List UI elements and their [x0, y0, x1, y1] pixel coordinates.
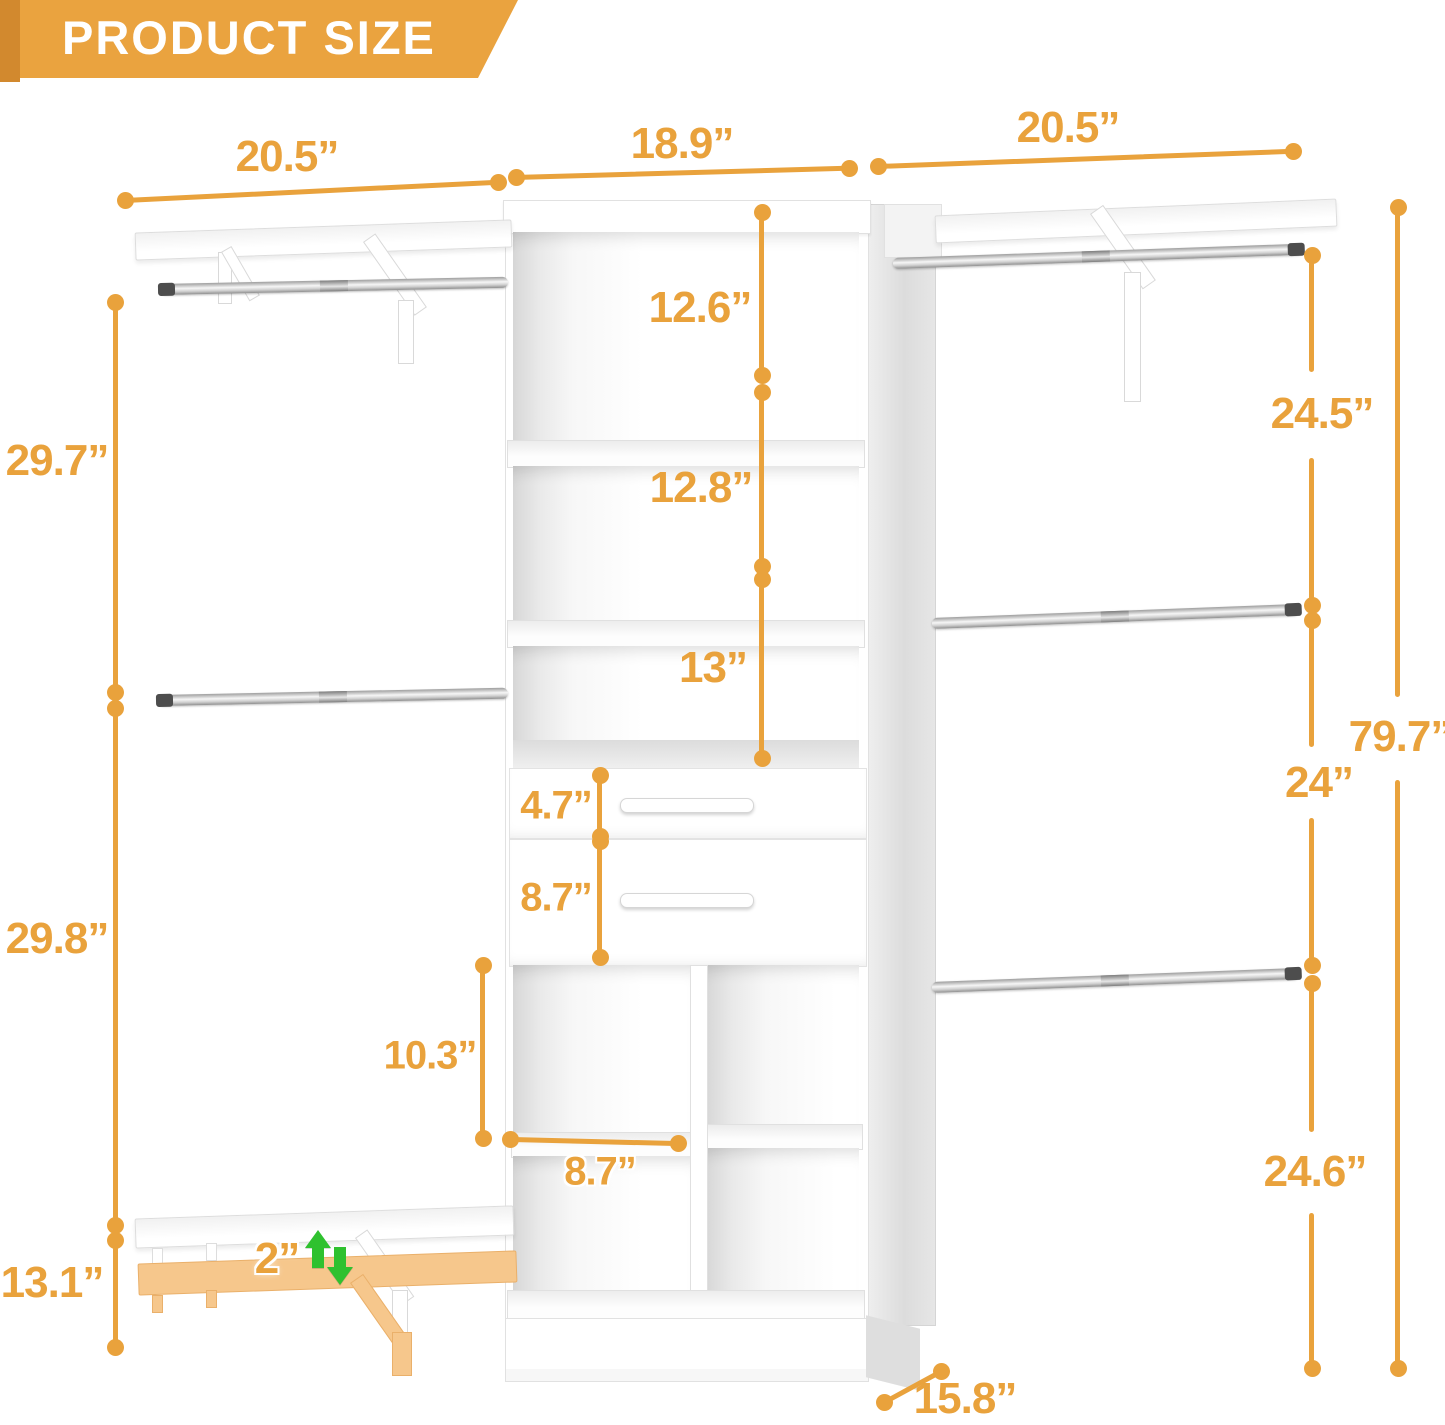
dim-dot: [754, 750, 771, 767]
arrow-shaft: [312, 1248, 324, 1268]
dim-label-top-center-width: 18.9”: [631, 119, 734, 169]
dimline-total-height-b: [1395, 780, 1400, 1368]
dimline-opening-2: [759, 392, 764, 566]
right-top-shelf: [935, 199, 1338, 244]
dimline-left-middle: [113, 708, 118, 1225]
dim-dot: [754, 571, 771, 588]
dim-dot: [1304, 247, 1321, 264]
dim-label-drawer-2: 8.7”: [520, 876, 592, 921]
tower-shelf-shadow-band: [513, 740, 859, 768]
right-shelf-bracket-vert: [1124, 272, 1141, 402]
arrow-shaft: [334, 1247, 346, 1267]
dim-label-opening-3: 13”: [679, 643, 747, 693]
hanging-rod-right-lower: [932, 968, 1300, 993]
dim-label-opening-1: 12.6”: [649, 283, 752, 333]
dim-label-total-height: 79.7”: [1349, 712, 1445, 762]
dim-dot: [107, 700, 124, 717]
ghost-shelf-pin: [152, 1295, 163, 1313]
tower-top-board: [503, 200, 871, 234]
dim-dot: [754, 384, 771, 401]
dim-label-right-lower: 24.6”: [1264, 1147, 1367, 1197]
hanging-rod-right-upper: [893, 244, 1303, 269]
dimline-top-left: [125, 180, 499, 203]
dim-dot: [502, 1131, 519, 1148]
dim-dot: [475, 1130, 492, 1147]
rod-seam: [320, 280, 348, 292]
tower-bottom-board: [507, 1290, 865, 1320]
tower-base: [505, 1318, 869, 1382]
dim-dot: [592, 833, 609, 850]
tower-opening-1: [513, 232, 859, 440]
rod-cap: [1284, 967, 1301, 981]
dimline-left-lower: [113, 1240, 118, 1347]
dim-dot: [592, 949, 609, 966]
dim-dot: [754, 367, 771, 384]
banner-edge-ribbon: [0, 0, 20, 82]
dim-label-top-left-width: 20.5”: [236, 132, 339, 182]
cubby-shelf-right: [704, 1124, 863, 1150]
page-title: PRODUCT SIZE: [62, 0, 436, 76]
dimline-opening-1: [759, 212, 764, 375]
cubby-divider: [690, 965, 708, 1292]
dim-dot: [1304, 612, 1321, 629]
drawer-1-handle: [620, 798, 754, 813]
rod-cap: [1284, 603, 1301, 617]
dim-dot: [670, 1135, 687, 1152]
shelf-pin: [206, 1243, 217, 1261]
rod-seam: [1101, 974, 1129, 986]
dim-dot: [1390, 199, 1407, 216]
dim-dot: [870, 158, 887, 175]
tower-base-side: [866, 1315, 920, 1390]
drawer-2-handle: [620, 893, 754, 908]
dimline-right-middle-a: [1309, 620, 1314, 747]
left-top-shelf: [135, 219, 513, 260]
dim-dot: [1285, 143, 1302, 160]
product-size-diagram: 20.5” 18.9” 20.5” 29.7” 29.8” 13.1” 12.6…: [0, 0, 1445, 1425]
cubby-top-left: [513, 965, 690, 1132]
dimline-opening-3: [759, 579, 764, 758]
cubby-bottom-right: [706, 1148, 859, 1290]
dim-dot: [1304, 975, 1321, 992]
dimline-drawer-2: [597, 841, 602, 957]
dim-dot: [107, 1339, 124, 1356]
dim-label-right-middle: 24”: [1285, 758, 1353, 808]
rod-seam: [1081, 250, 1109, 262]
dim-dot: [841, 160, 858, 177]
header-banner: PRODUCT SIZE: [20, 0, 518, 78]
rod-cap: [1288, 243, 1305, 257]
dim-dot: [107, 294, 124, 311]
dim-dot: [1390, 1360, 1407, 1377]
dimline-right-upper-a: [1309, 255, 1314, 372]
dim-dot: [1304, 957, 1321, 974]
dim-dot: [876, 1394, 893, 1411]
dim-dot: [107, 1232, 124, 1249]
dim-label-drawer-1: 4.7”: [520, 784, 592, 829]
dim-dot: [508, 169, 525, 186]
cubby-top-right: [706, 965, 859, 1124]
dim-label-cubby-width: 8.7”: [564, 1150, 636, 1195]
rod-cap: [158, 283, 175, 296]
dimline-drawer-1: [597, 775, 602, 836]
dim-label-left-middle: 29.8”: [6, 914, 109, 964]
dim-dot: [1304, 1360, 1321, 1377]
dim-dot: [754, 204, 771, 221]
rod-mounting-plate: [884, 204, 942, 258]
left-shelf-bracket-vert: [398, 300, 414, 364]
dim-dot: [490, 174, 507, 191]
dim-dot: [107, 684, 124, 701]
dimline-cubby-height: [480, 965, 485, 1138]
rod-seam: [319, 691, 347, 703]
dim-dot: [475, 957, 492, 974]
dimline-left-upper: [113, 302, 118, 692]
dim-label-opening-2: 12.8”: [650, 463, 753, 513]
dim-label-left-lower: 13.1”: [1, 1258, 104, 1308]
dim-label-cubby-height: 10.3”: [384, 1034, 477, 1079]
rod-cap: [156, 694, 173, 707]
dim-label-depth: 15.8”: [914, 1374, 1017, 1424]
ghost-shelf-pin: [206, 1290, 217, 1308]
arrow-down-icon: [327, 1247, 353, 1285]
rod-seam: [1101, 610, 1129, 622]
hanging-rod-right-middle: [932, 604, 1300, 629]
dim-label-right-upper: 24.5”: [1271, 389, 1374, 439]
hanging-rod-left-upper: [160, 277, 508, 295]
arrow-head: [327, 1267, 353, 1285]
dimline-right-lower-b: [1309, 1213, 1314, 1368]
arrow-head: [305, 1230, 331, 1248]
ghost-bracket-vert: [392, 1332, 412, 1376]
dim-label-left-upper: 29.7”: [6, 436, 109, 486]
dimline-total-height-a: [1395, 207, 1400, 697]
tower-side-panel: [866, 204, 936, 1326]
hanging-rod-left-lower: [158, 688, 508, 706]
dim-label-shelf-adjust: 2”: [255, 1234, 299, 1284]
dimline-right-lower-a: [1309, 983, 1314, 1132]
dimline-right-middle-b: [1309, 818, 1314, 965]
dim-dot: [592, 767, 609, 784]
dim-label-top-right-width: 20.5”: [1017, 103, 1120, 153]
dim-dot: [117, 192, 134, 209]
dimline-right-upper-b: [1309, 458, 1314, 605]
